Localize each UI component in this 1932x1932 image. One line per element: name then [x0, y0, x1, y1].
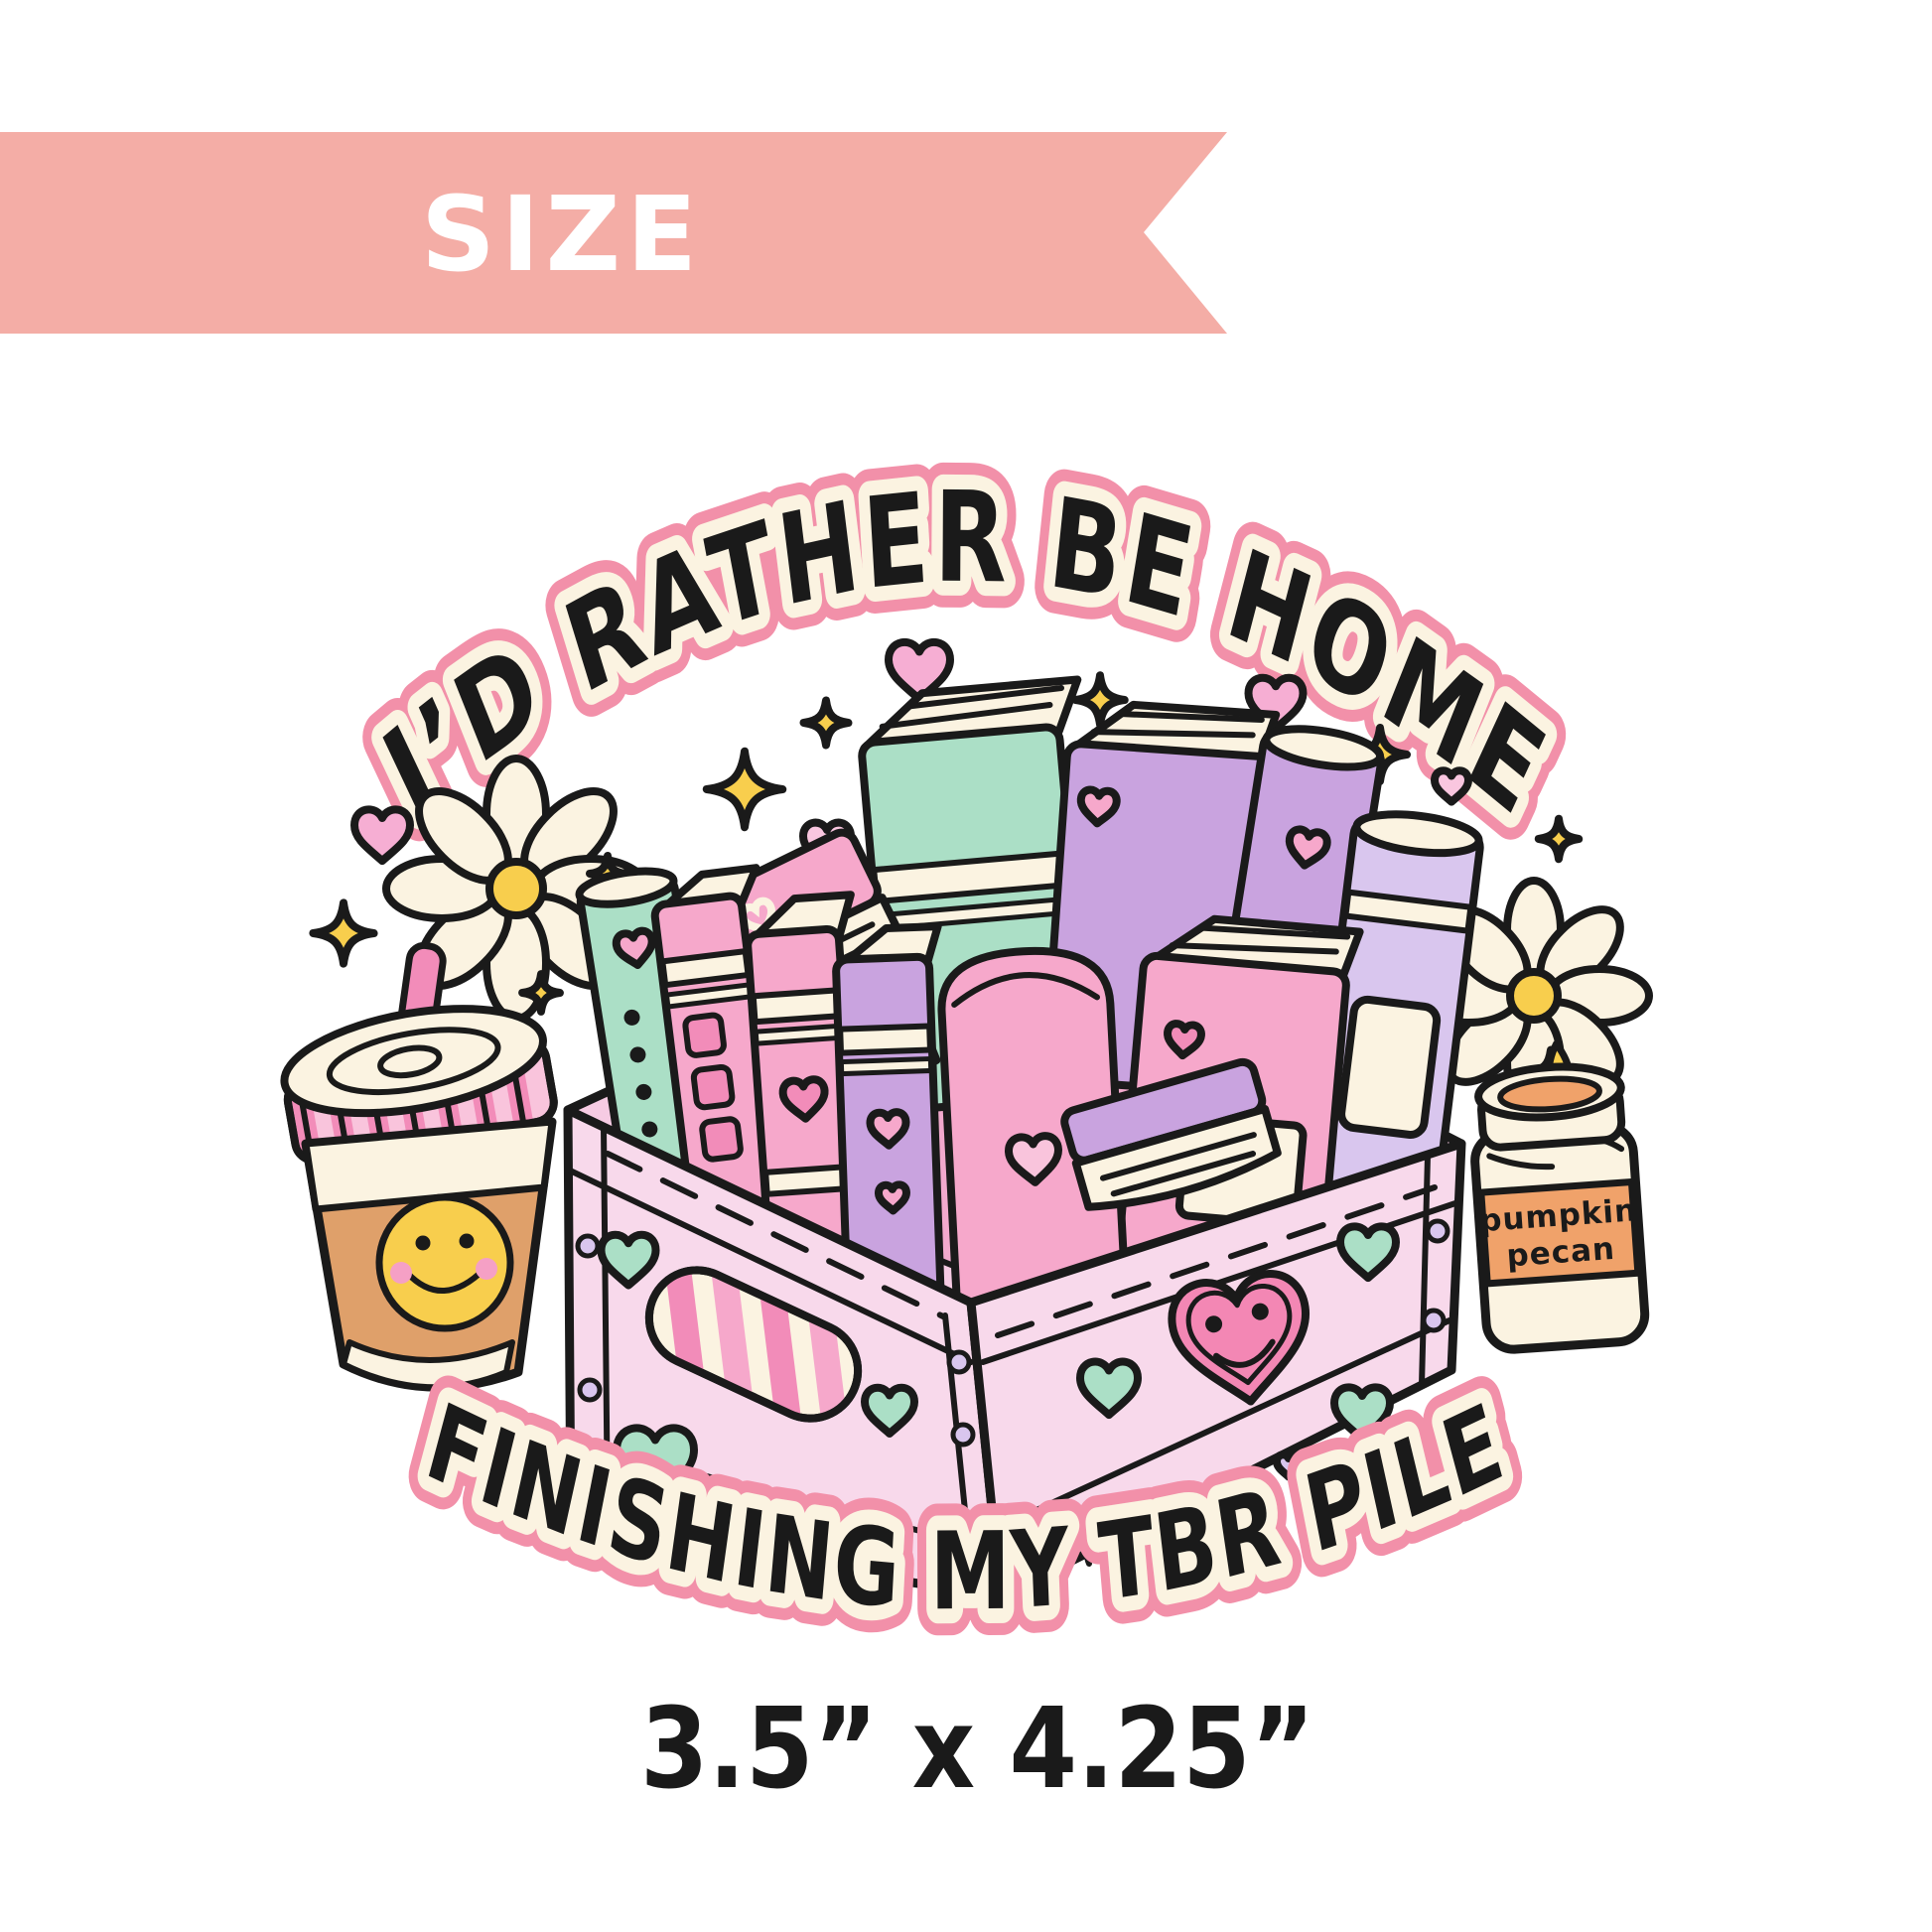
size-value: 3.5” x 4.25”: [640, 1684, 1314, 1814]
banner-label: SIZE: [421, 174, 703, 295]
size-dimensions: 3.5” x 4.25”: [640, 1684, 1314, 1814]
candle-jar: pumpkin pecan: [1467, 1039, 1647, 1351]
size-banner: SIZE: [0, 132, 1227, 334]
product-image: SIZE I’D RATHER BE HOME I’D RATHER BE HO…: [0, 0, 1932, 1932]
cup-body: [306, 1122, 552, 1387]
candle-label-line2: pecan: [1505, 1231, 1616, 1275]
